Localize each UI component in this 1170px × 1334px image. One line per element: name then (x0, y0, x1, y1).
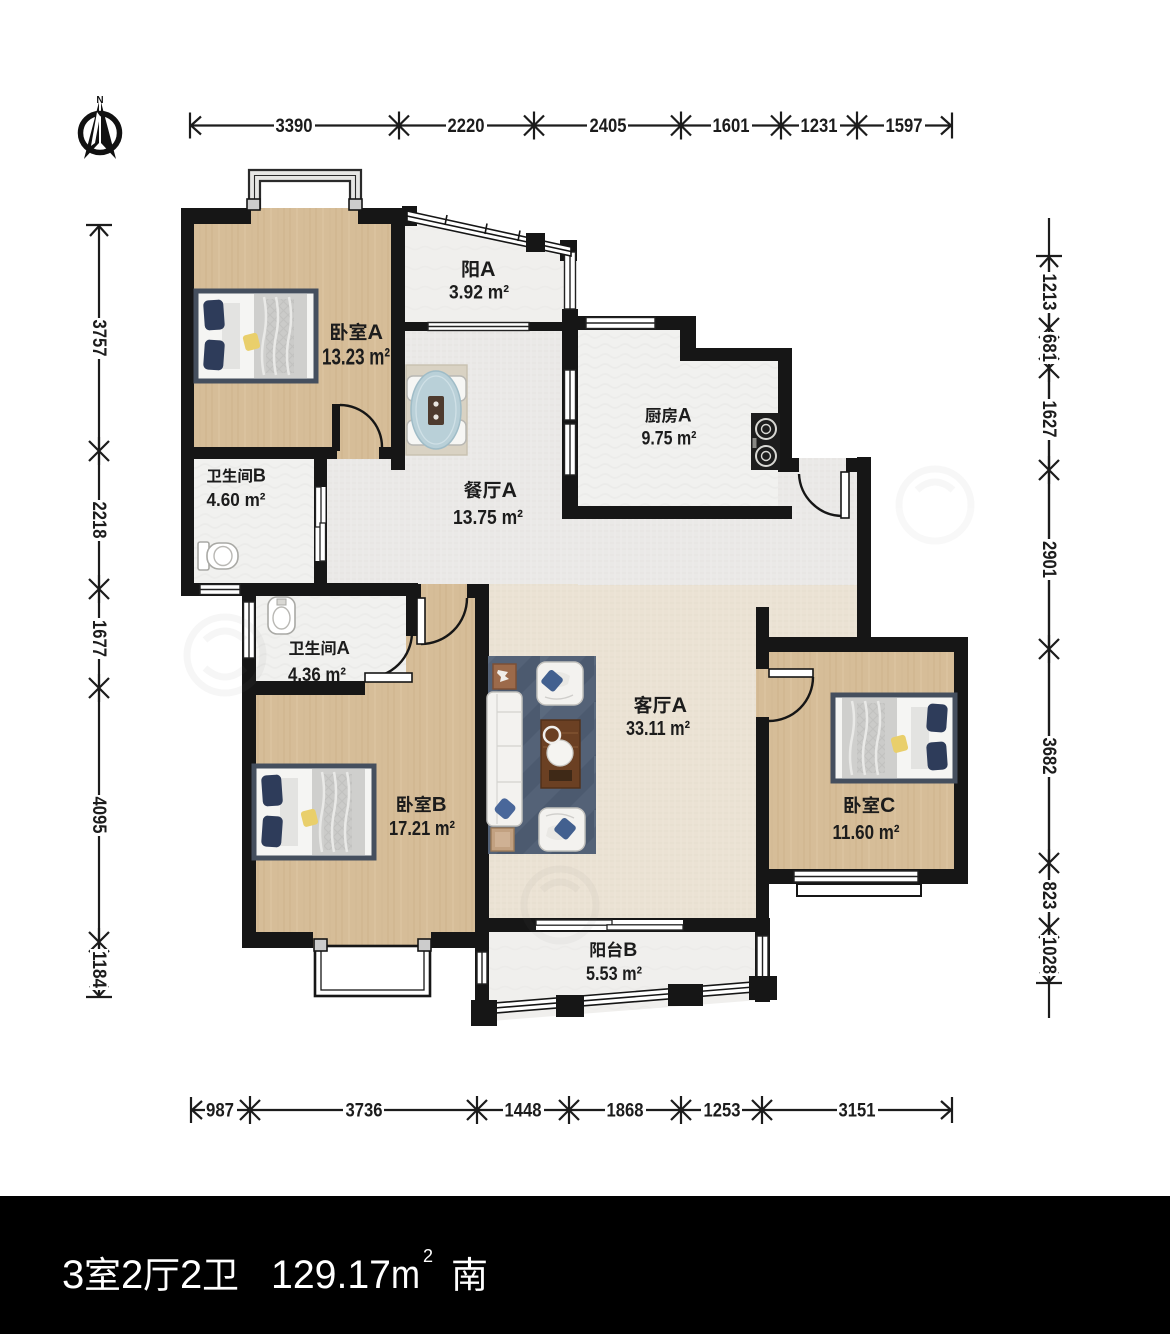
svg-text:3: 3 (62, 1253, 84, 1297)
svg-text:A: A (502, 478, 518, 502)
svg-text:11.60 m²: 11.60 m² (833, 822, 900, 844)
svg-text:1184: 1184 (88, 951, 109, 988)
svg-text:3757: 3757 (88, 320, 109, 357)
svg-text:1677: 1677 (88, 620, 109, 657)
svg-text:13.23 m²: 13.23 m² (322, 344, 390, 370)
svg-text:9.75 m²: 9.75 m² (642, 429, 697, 450)
svg-text:4.60 m²: 4.60 m² (207, 489, 266, 510)
svg-text:1253: 1253 (704, 1101, 741, 1122)
svg-text:A: A (480, 257, 496, 281)
svg-text:987: 987 (206, 1101, 234, 1122)
svg-text:B: B (432, 793, 447, 816)
svg-text:1028: 1028 (1038, 937, 1059, 974)
svg-text:13.75 m²: 13.75 m² (453, 507, 523, 529)
svg-text:1231: 1231 (801, 116, 838, 137)
svg-text:B: B (623, 939, 637, 961)
svg-text:3682: 3682 (1038, 738, 1059, 775)
svg-text:1448: 1448 (505, 1101, 542, 1122)
svg-text:681: 681 (1038, 334, 1059, 362)
svg-text:A: A (678, 406, 692, 427)
svg-text:1601: 1601 (713, 116, 750, 137)
svg-text:5.53 m²: 5.53 m² (586, 964, 642, 985)
svg-text:1868: 1868 (607, 1101, 644, 1122)
svg-text:4.36 m²: 4.36 m² (288, 665, 346, 686)
svg-text:3736: 3736 (346, 1101, 383, 1122)
svg-text:2218: 2218 (88, 502, 109, 539)
svg-text:2: 2 (121, 1253, 143, 1297)
svg-text:m: m (391, 1253, 420, 1297)
svg-text:B: B (253, 466, 266, 486)
svg-text:3151: 3151 (839, 1101, 876, 1122)
svg-text:A: A (368, 320, 384, 344)
svg-text:A: A (337, 637, 350, 658)
svg-text:2405: 2405 (590, 116, 627, 137)
svg-text:33.11 m²: 33.11 m² (626, 718, 690, 740)
svg-text:1213: 1213 (1038, 274, 1059, 311)
svg-text:3.92 m²: 3.92 m² (449, 283, 509, 304)
svg-text:17.21 m²: 17.21 m² (389, 818, 455, 840)
svg-text:3390: 3390 (276, 116, 313, 137)
svg-text:4095: 4095 (88, 797, 109, 834)
svg-text:823: 823 (1038, 882, 1059, 910)
svg-text:2: 2 (423, 1246, 433, 1266)
svg-text:1597: 1597 (886, 116, 923, 137)
svg-text:2901: 2901 (1038, 541, 1059, 578)
svg-text:2: 2 (180, 1253, 202, 1297)
svg-text:C: C (880, 794, 895, 817)
svg-text:N: N (96, 95, 103, 106)
svg-text:2220: 2220 (448, 116, 485, 137)
svg-text:129.17: 129.17 (271, 1253, 391, 1297)
svg-text:A: A (672, 693, 688, 717)
svg-text:1627: 1627 (1038, 401, 1059, 438)
